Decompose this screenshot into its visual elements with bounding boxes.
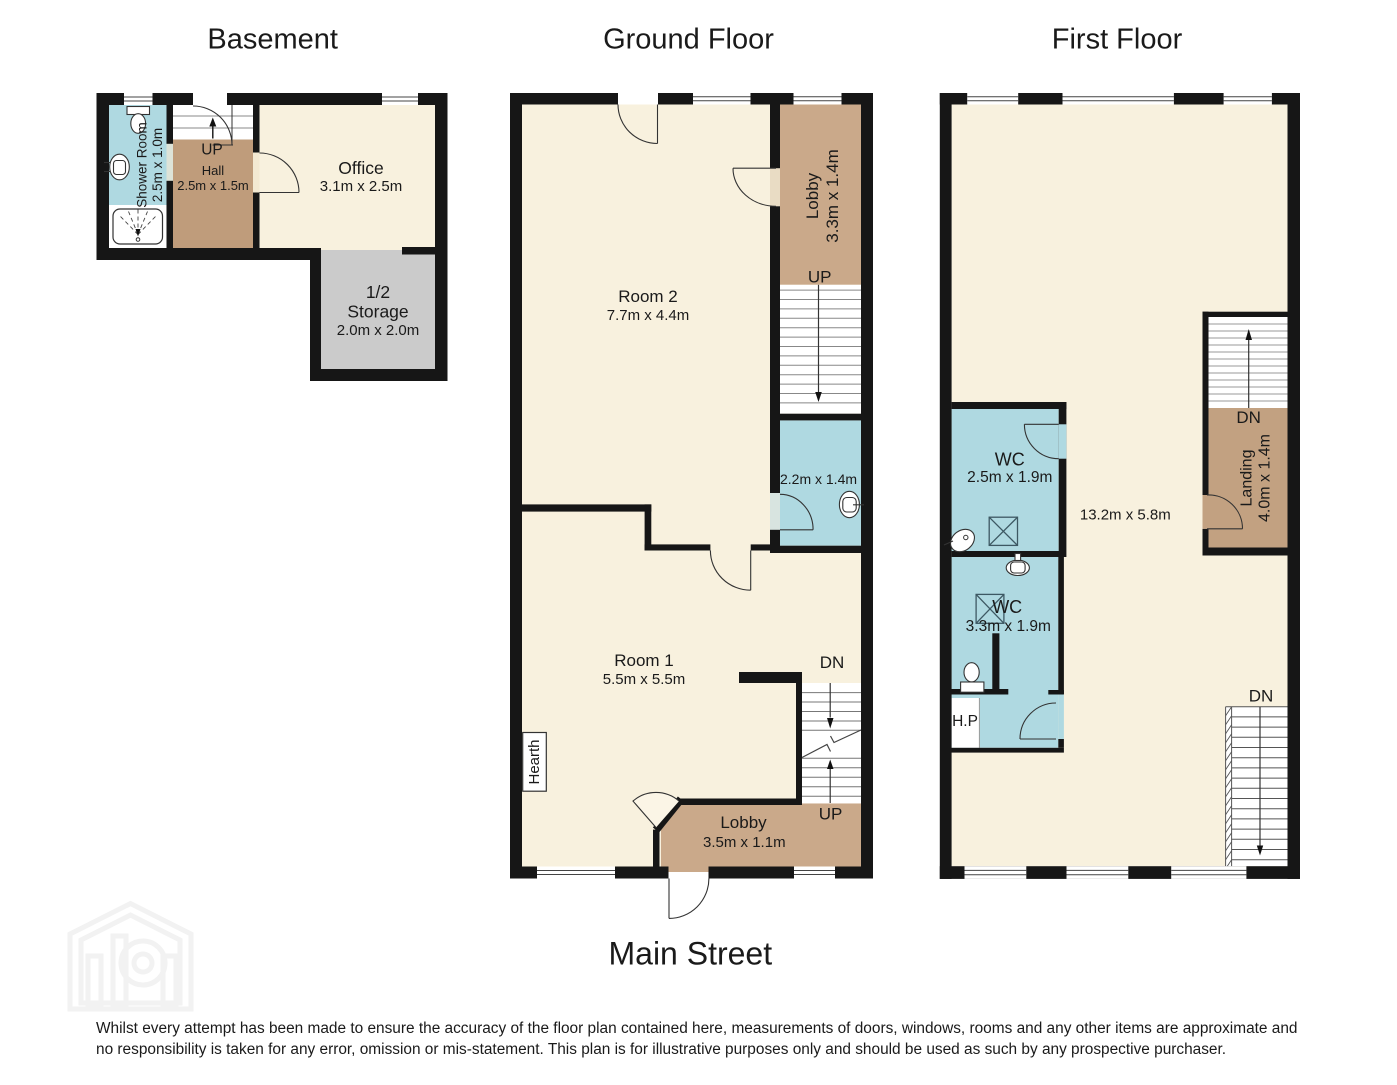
svg-text:H.P: H.P [952,713,978,730]
svg-text:Whilst every attempt has been: Whilst every attempt has been made to en… [96,1020,1297,1037]
svg-text:Storage: Storage [347,302,408,322]
svg-text:3.5m x 1.1m: 3.5m x 1.1m [703,834,786,851]
svg-text:DN: DN [820,653,845,672]
svg-text:WC: WC [992,597,1022,617]
svg-text:5.5m x 5.5m: 5.5m x 5.5m [603,671,686,688]
svg-text:no responsibility is taken for: no responsibility is taken for any error… [96,1041,1226,1058]
svg-text:2.2m x 1.4m: 2.2m x 1.4m [780,471,857,487]
svg-text:UP: UP [808,268,832,287]
svg-text:UP: UP [201,142,223,159]
svg-text:First Floor: First Floor [1052,24,1183,56]
svg-text:DN: DN [1236,408,1261,427]
svg-text:DN: DN [1249,687,1274,706]
svg-text:3.3m x 1.9m: 3.3m x 1.9m [966,618,1051,635]
svg-text:7.7m x 4.4m: 7.7m x 4.4m [607,307,690,324]
svg-text:UP: UP [819,805,843,824]
svg-text:Main Street: Main Street [608,936,772,972]
svg-text:Lobby: Lobby [803,172,822,219]
svg-text:3.1m x 2.5m: 3.1m x 2.5m [320,178,403,195]
svg-text:Hearth: Hearth [526,739,543,784]
svg-text:Office: Office [338,158,383,178]
svg-text:WC: WC [995,450,1025,470]
svg-text:Room 2: Room 2 [618,287,678,306]
svg-text:2.0m x 2.0m: 2.0m x 2.0m [337,322,420,339]
svg-text:3.3m x 1.4m: 3.3m x 1.4m [823,149,842,243]
svg-text:Room 1: Room 1 [614,651,674,670]
svg-text:Shower Room: Shower Room [135,122,150,208]
svg-text:4.0m x 1.4m: 4.0m x 1.4m [1257,434,1274,522]
svg-text:13.2m x 5.8m: 13.2m x 5.8m [1080,507,1171,524]
svg-text:Landing: Landing [1239,450,1256,507]
svg-text:1/2: 1/2 [366,282,390,302]
svg-text:2.5m x 1.9m: 2.5m x 1.9m [967,469,1052,486]
svg-text:Lobby: Lobby [720,813,767,832]
svg-text:Hall: Hall [202,163,225,178]
svg-text:2.5m x 1.5m: 2.5m x 1.5m [177,178,249,193]
svg-text:Ground Floor: Ground Floor [603,24,774,56]
svg-text:Basement: Basement [207,24,338,56]
svg-text:2.5m x 1.0m: 2.5m x 1.0m [150,128,165,202]
